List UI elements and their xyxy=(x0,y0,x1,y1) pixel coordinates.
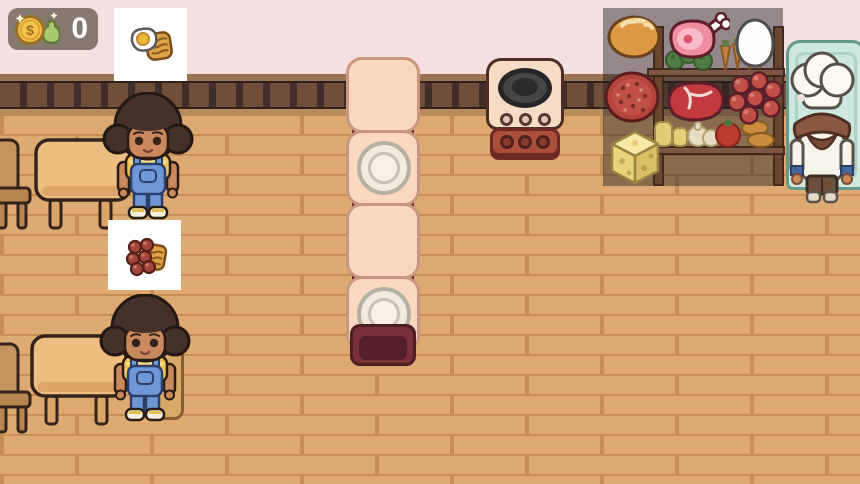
counter-segment-2[interactable] xyxy=(346,130,420,206)
chair xyxy=(0,342,34,436)
ingredient-ham[interactable] xyxy=(664,12,730,68)
stove-base-dot xyxy=(536,135,550,149)
order-card-1[interactable] xyxy=(114,8,187,81)
counter-segment-3[interactable] xyxy=(346,203,420,279)
pantry-panel xyxy=(603,8,783,186)
chair xyxy=(0,138,34,232)
stove-knob xyxy=(500,113,513,126)
stove-base-dot xyxy=(500,135,514,149)
plate-center xyxy=(368,152,400,184)
fried-egg-hash-brown-icon xyxy=(127,23,175,67)
counter-foot xyxy=(350,324,416,366)
ingredient-meatballs[interactable] xyxy=(725,70,785,128)
money-value: 0 xyxy=(71,14,88,44)
customer-1[interactable] xyxy=(101,92,195,224)
coin-and-money-bag-icon: $ xyxy=(14,11,60,47)
customer-2[interactable] xyxy=(98,294,192,426)
plate[interactable] xyxy=(357,141,411,195)
counter-segment-1[interactable] xyxy=(346,57,420,133)
stove-base xyxy=(490,128,560,160)
ingredient-egg[interactable] xyxy=(731,16,779,70)
ingredient-cheese[interactable] xyxy=(606,126,664,186)
stove-knob xyxy=(519,113,532,126)
currency-symbol: $ xyxy=(26,22,34,38)
frying-pan[interactable] xyxy=(498,68,552,108)
meatballs-hash-brown-icon xyxy=(121,233,169,277)
money-counter: $ 0 xyxy=(8,8,98,50)
stove-base-dot xyxy=(518,135,532,149)
ingredient-bread[interactable] xyxy=(606,10,662,62)
game-scene: $ 0 xyxy=(0,0,860,484)
stove[interactable] xyxy=(486,58,564,130)
ingredient-steak[interactable] xyxy=(663,74,729,130)
pan-center xyxy=(512,78,538,96)
chef xyxy=(781,46,860,212)
order-card-2[interactable] xyxy=(108,220,181,290)
stove-base-panel xyxy=(493,131,557,153)
stove-knob xyxy=(538,113,551,126)
counter-foot-inset xyxy=(359,336,407,360)
ingredient-salami[interactable] xyxy=(603,70,661,124)
